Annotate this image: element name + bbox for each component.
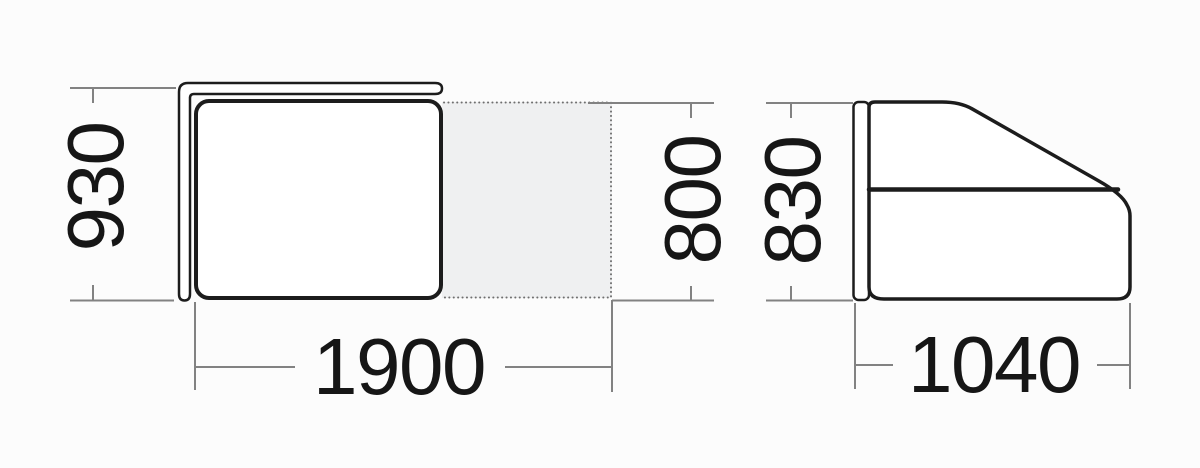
plan-view-seat-outline <box>196 101 441 298</box>
technical-drawing-canvas: 930 1900 800 <box>0 0 1200 468</box>
plan-view-extension-area <box>442 102 612 298</box>
dim-1900-label: 1900 <box>313 322 485 411</box>
dim-830-label: 830 <box>748 137 837 266</box>
dim-1040-label: 1040 <box>908 320 1080 409</box>
dim-800-label: 800 <box>648 136 737 265</box>
dimension-drawing: 930 1900 800 <box>0 0 1200 468</box>
dim-930-label: 930 <box>51 123 140 252</box>
side-view-rear-panel <box>854 102 870 300</box>
